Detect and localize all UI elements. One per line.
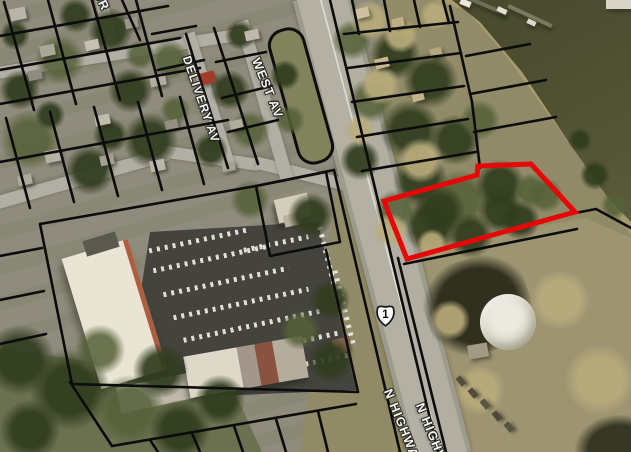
sand-patch (455, 365, 505, 415)
tree-canopy (65, 145, 115, 195)
tree-canopy (568, 128, 592, 152)
tree-shadow (575, 415, 631, 452)
tree-canopy (513, 173, 548, 208)
sand-patch (345, 115, 375, 145)
tree-canopy (0, 400, 60, 452)
tree-canopy (108, 68, 153, 113)
tree-canopy (125, 40, 155, 70)
tree-canopy (270, 60, 300, 90)
building-footprint (606, 0, 631, 9)
tree-canopy (230, 180, 270, 220)
tree-canopy (415, 185, 465, 235)
sand-patch (420, 0, 450, 30)
tree-canopy (288, 193, 333, 238)
tree-canopy (210, 70, 250, 110)
us-route-1-shield-icon: 1 (374, 302, 397, 328)
tree-canopy (310, 280, 350, 320)
route-shield-number: 1 (382, 309, 389, 321)
tree-canopy (75, 325, 125, 375)
sand-patch (430, 300, 470, 340)
tree-canopy (0, 20, 30, 50)
sand-patch (417, 229, 447, 259)
sand-patch (530, 270, 590, 330)
aerial-map-viewport[interactable]: OR WEST AV DELIVERY AV N HIGHWAY 1 N HIG… (0, 0, 631, 452)
sand-patch (565, 345, 631, 415)
tree-canopy (601, 191, 629, 219)
tree-canopy (35, 100, 65, 130)
tree-canopy (340, 140, 380, 180)
tree-canopy (308, 338, 353, 383)
sand-patch (360, 65, 400, 105)
storage-tank (480, 294, 536, 350)
tree-canopy (133, 343, 188, 398)
tree-canopy (460, 100, 500, 140)
tree-canopy (580, 160, 610, 190)
sand-patch (398, 138, 443, 183)
sand-patch (373, 213, 408, 248)
tree-canopy (195, 375, 245, 425)
tree-canopy (58, 0, 93, 33)
